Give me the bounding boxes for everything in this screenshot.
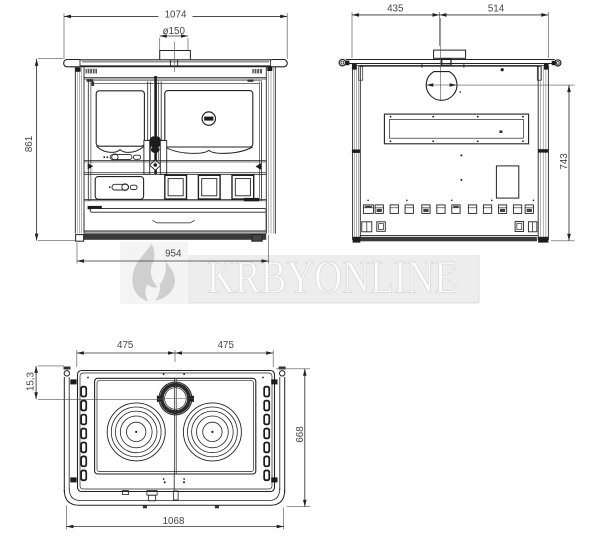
svg-text:1074: 1074: [165, 9, 187, 20]
svg-text:743: 743: [559, 153, 570, 170]
svg-text:954: 954: [165, 248, 182, 259]
svg-text:1068: 1068: [163, 516, 185, 527]
svg-text:475: 475: [218, 340, 235, 351]
svg-text:514: 514: [488, 4, 505, 15]
svg-text:435: 435: [387, 4, 404, 15]
svg-text:15,3: 15,3: [26, 372, 37, 392]
svg-text:KRBYONLINE: KRBYONLINE: [207, 252, 458, 304]
svg-text:668: 668: [295, 426, 306, 443]
svg-text:861: 861: [24, 136, 35, 152]
svg-text:475: 475: [117, 340, 134, 351]
